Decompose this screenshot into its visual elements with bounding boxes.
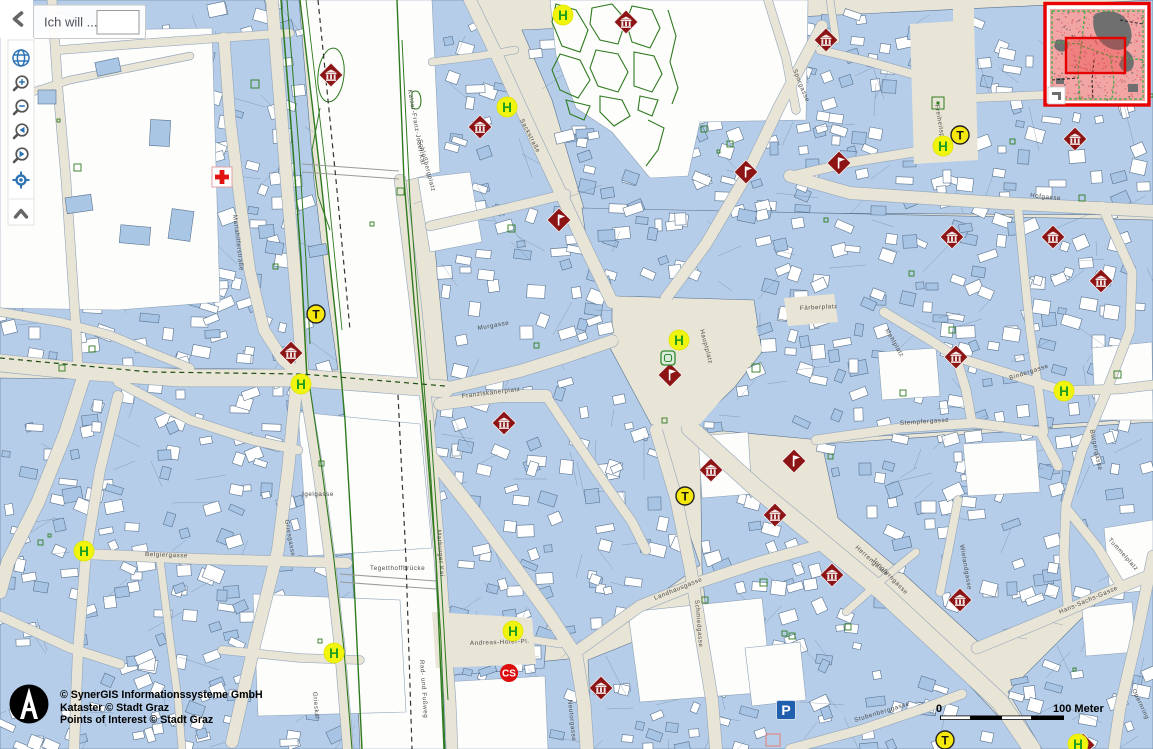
svg-text:H: H (296, 377, 306, 392)
svg-text:Kataster © Stadt Graz: Kataster © Stadt Graz (60, 702, 169, 714)
svg-text:T: T (956, 128, 964, 142)
svg-text:H: H (1059, 384, 1069, 399)
svg-text:H: H (938, 139, 948, 154)
svg-text:T: T (941, 733, 949, 747)
svg-text:CS: CS (502, 669, 516, 680)
svg-text:H: H (329, 646, 339, 661)
svg-text:H: H (674, 333, 684, 348)
svg-text:T: T (681, 489, 689, 503)
svg-text:© SynerGIS Informationssysteme: © SynerGIS Informationssysteme GmbH (60, 689, 263, 701)
svg-text:Igelgasse: Igelgasse (302, 491, 334, 498)
svg-text:T: T (312, 307, 320, 321)
svg-text:H: H (79, 544, 89, 559)
svg-text:H: H (502, 100, 512, 115)
svg-text:0: 0 (936, 703, 942, 715)
svg-text:100 Meter: 100 Meter (1053, 703, 1104, 715)
svg-text:Belgiergasse: Belgiergasse (145, 551, 188, 559)
svg-text:H: H (1073, 737, 1083, 749)
svg-text:H: H (558, 8, 568, 23)
svg-text:Tegetthoffbrücke: Tegetthoffbrücke (370, 565, 425, 572)
svg-text:H: H (508, 624, 518, 639)
svg-text:Ich will ...: Ich will ... (44, 15, 97, 30)
svg-text:P: P (781, 702, 790, 718)
svg-text:Points of Interest © Stadt Gra: Points of Interest © Stadt Graz (60, 714, 213, 726)
